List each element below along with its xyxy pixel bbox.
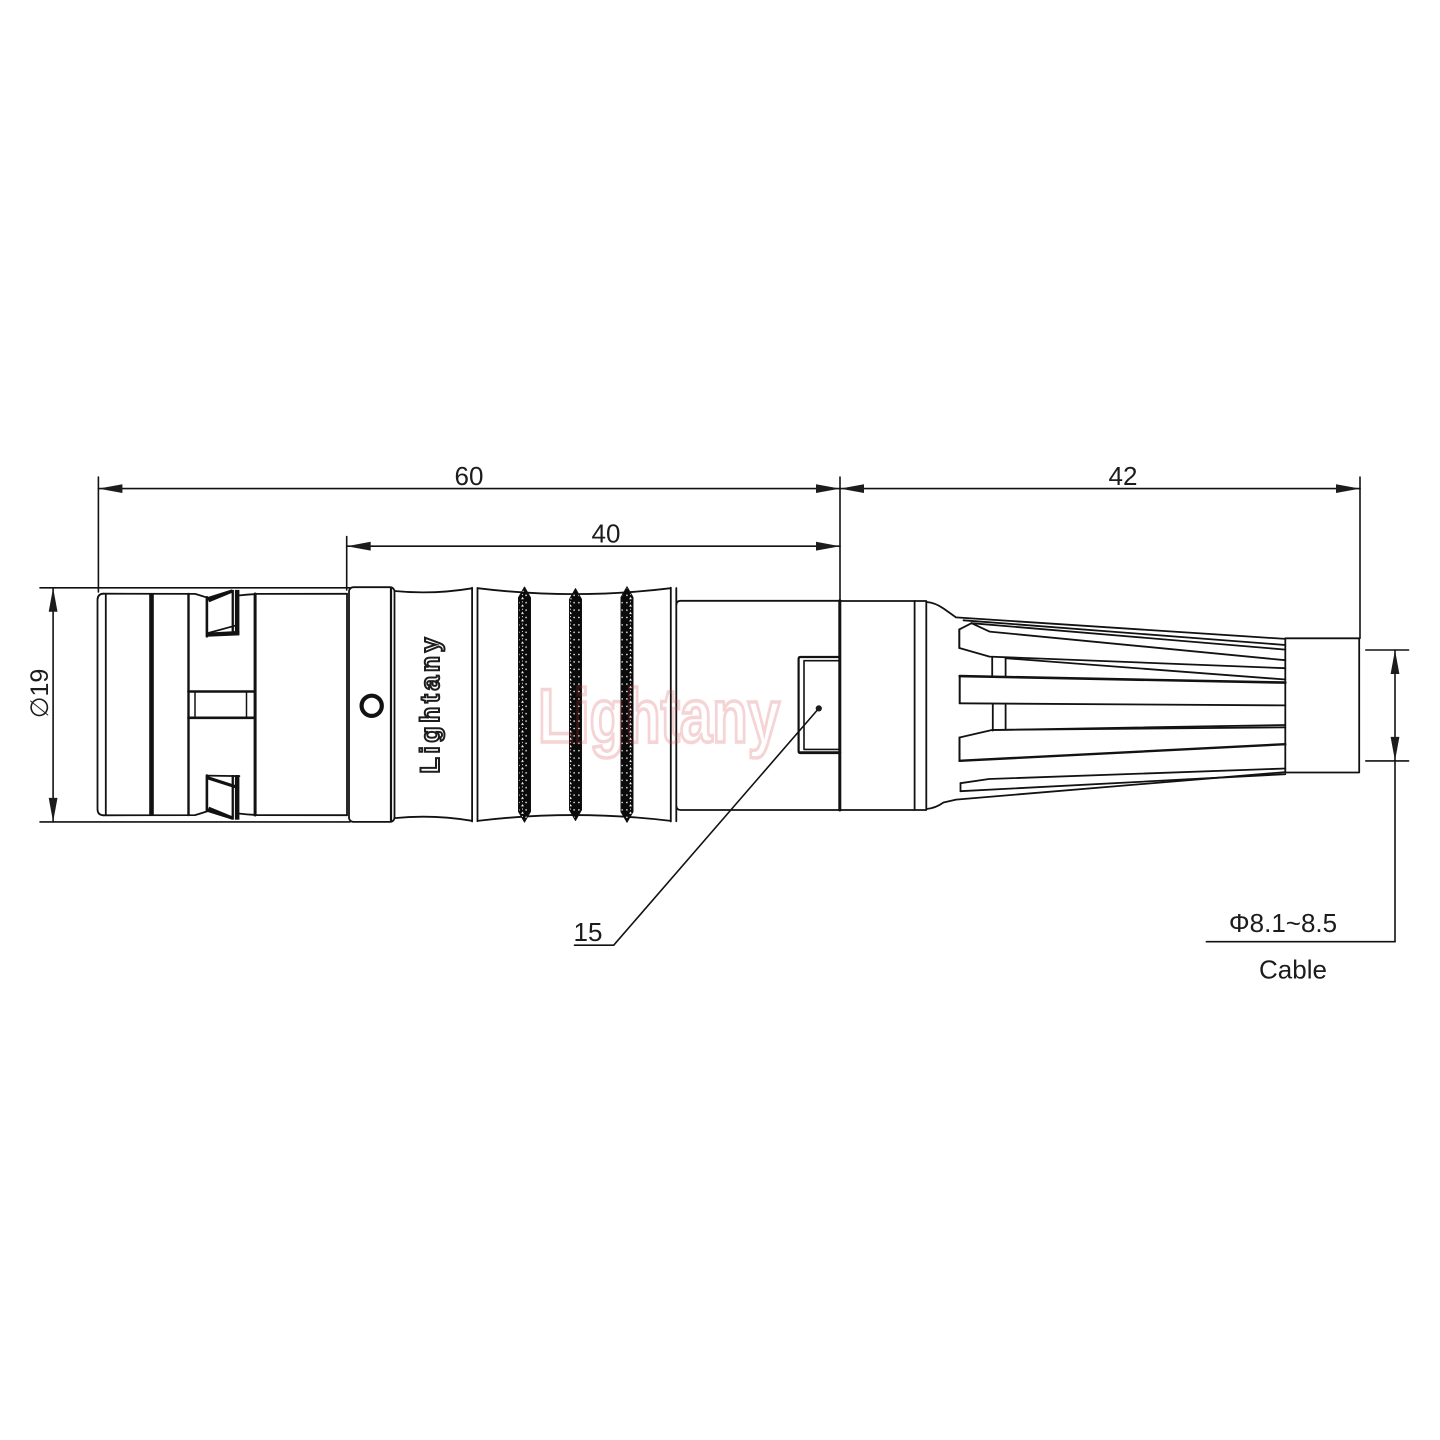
svg-text:42: 42 [1109,461,1138,491]
svg-text:Lightany: Lightany [415,637,445,773]
svg-text:Lightany: Lightany [538,674,780,759]
svg-text:Cable: Cable [1259,955,1327,985]
svg-text:60: 60 [455,461,484,491]
svg-text:∅19: ∅19 [26,669,54,719]
svg-text:15: 15 [574,917,603,947]
svg-text:Φ8.1~8.5: Φ8.1~8.5 [1229,908,1337,938]
svg-text:40: 40 [592,519,621,549]
